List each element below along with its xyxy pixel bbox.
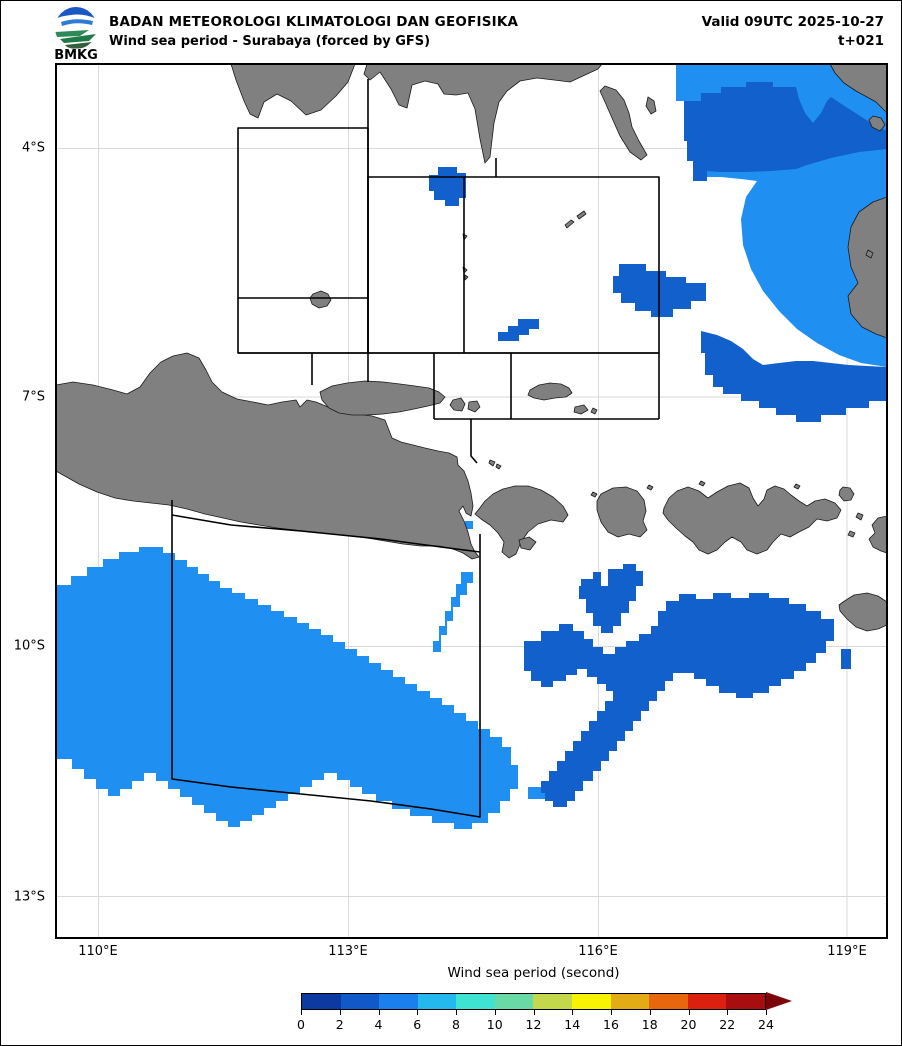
lat-label-13s: 13°S (14, 890, 45, 905)
colorbar-tick (766, 1010, 767, 1015)
kangean-east-islet-1 (574, 405, 588, 414)
colorbar-ticks: 024681012141618202224 (1, 1010, 902, 1040)
weather-map-figure: BMKG BADAN METEOROLOGI KLIMATOLOGI DAN G… (0, 0, 902, 1046)
colorbar-segment-4 (456, 994, 495, 1009)
lombok-south-hook-patch (579, 564, 643, 633)
colorbar-segment-9 (649, 994, 688, 1009)
colorbar-tick (340, 1010, 341, 1015)
colorbar-tick-label: 2 (322, 1017, 358, 1032)
colorbar-arrow (766, 992, 792, 1010)
north-coast-islet-2 (699, 481, 705, 486)
north-coast-islet-1 (647, 485, 653, 490)
colorbar-tick (301, 1010, 302, 1015)
colorbar-tick-label: 16 (593, 1017, 629, 1032)
colorbar-tick (650, 1010, 651, 1015)
lon-label-116e: 116°E (568, 944, 628, 959)
surabaya-strait-islet-2 (496, 464, 501, 469)
komodo-islet-1 (856, 513, 863, 520)
colorbar-tick (495, 1010, 496, 1015)
lat-label-10s: 10°S (14, 639, 45, 654)
colorbar-title: Wind sea period (second) (301, 965, 766, 981)
lat-label-4s: 4°S (22, 141, 45, 156)
karamian-islet-2 (577, 211, 586, 219)
colorbar-tick-label: 24 (748, 1017, 784, 1032)
colorbar (301, 993, 766, 1010)
gili-islet (591, 492, 597, 497)
colorbar-tick-label: 4 (361, 1017, 397, 1032)
colorbar-segment-0 (302, 994, 341, 1009)
colorbar-tick (379, 1010, 380, 1015)
raas-island (468, 401, 480, 412)
sumbawa-south-mass (524, 593, 834, 807)
bawean-island (310, 291, 331, 308)
sumba-island (839, 593, 887, 631)
colorbar-tick (456, 1010, 457, 1015)
colorbar-segment-3 (418, 994, 457, 1009)
colorbar-segment-8 (611, 994, 650, 1009)
colorbar-segment-7 (572, 994, 611, 1009)
colorbar-tick-label: 6 (399, 1017, 435, 1032)
sapudi-island (450, 398, 465, 411)
colorbar-tick (611, 1010, 612, 1015)
komodo-flores-tip (869, 516, 887, 553)
small-island-east-of-laut (646, 97, 656, 114)
colorbar-segment-11 (726, 994, 765, 1009)
kangean-east-islet-2 (591, 408, 597, 414)
nusa-penida-island (519, 537, 536, 550)
lon-label-113e: 113°E (318, 944, 378, 959)
colorbar-tick-label: 8 (438, 1017, 474, 1032)
komodo-islet-2 (848, 531, 855, 537)
kangean-island (528, 383, 572, 400)
map-canvas (1, 1, 902, 1046)
colorbar-tick (689, 1010, 690, 1015)
surabaya-strait-islet-1 (489, 460, 495, 466)
colorbar-segment-2 (379, 994, 418, 1009)
colorbar-segment-5 (495, 994, 534, 1009)
colorbar-tick-label: 0 (283, 1017, 319, 1032)
south-java-swell-area (56, 547, 518, 829)
madura-island (320, 381, 445, 415)
north-coast-islet-3 (794, 484, 800, 489)
colorbar-tick-label: 20 (671, 1017, 707, 1032)
sumbawa-south-fragment (841, 649, 851, 669)
lat-label-7s: 7°S (22, 390, 45, 405)
masalembu-islet-3 (465, 275, 468, 280)
bali-strait-streak (433, 572, 473, 652)
colorbar-tick (727, 1010, 728, 1015)
colorbar-tick-label: 18 (632, 1017, 668, 1032)
colorbar-tick (572, 1010, 573, 1015)
colorbar-tick-label: 14 (554, 1017, 590, 1032)
lon-label-119e: 119°E (817, 944, 877, 959)
sumbawa-island (663, 483, 841, 554)
sangeang-island (839, 487, 854, 501)
colorbar-tick-label: 10 (477, 1017, 513, 1032)
colorbar-tick-label: 22 (709, 1017, 745, 1032)
colorbar-segment-1 (341, 994, 380, 1009)
karamian-islet-1 (565, 220, 574, 228)
colorbar-tick (534, 1010, 535, 1015)
kangean-south-patch (498, 319, 539, 341)
colorbar-segment-6 (533, 994, 572, 1009)
masalembu-corner-patch (429, 167, 466, 206)
kalimantan-west (231, 64, 355, 118)
lombok-island (597, 487, 647, 537)
colorbar-tick-label: 12 (516, 1017, 552, 1032)
lon-label-110e: 110°E (68, 944, 128, 959)
colorbar-segment-10 (688, 994, 727, 1009)
colorbar-tick (417, 1010, 418, 1015)
